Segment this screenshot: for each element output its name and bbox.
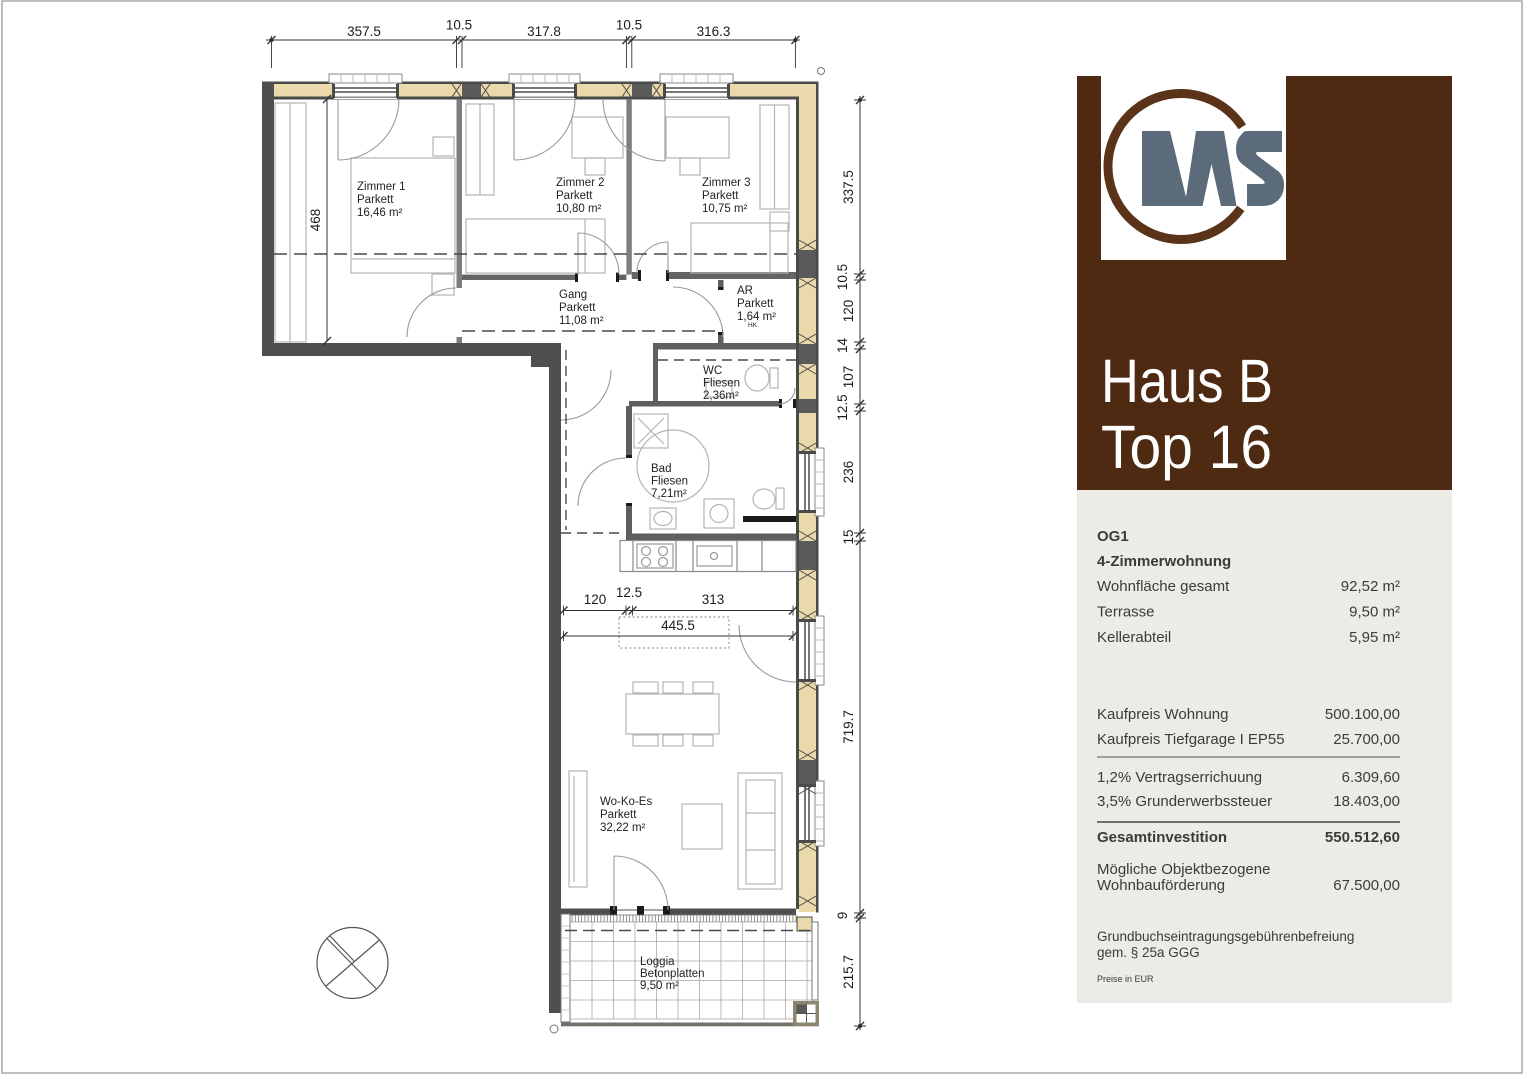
svg-text:Loggia: Loggia — [640, 956, 675, 968]
svg-text:1,2% Vertragserrichuung: 1,2% Vertragserrichuung — [1097, 769, 1262, 786]
svg-text:6.309,60: 6.309,60 — [1342, 769, 1400, 786]
svg-text:Parkett: Parkett — [702, 190, 739, 202]
svg-text:Parkett: Parkett — [600, 809, 637, 821]
svg-text:468: 468 — [308, 209, 323, 232]
svg-text:Parkett: Parkett — [737, 298, 774, 310]
svg-text:10.5: 10.5 — [835, 264, 850, 290]
svg-text:32,22 m²: 32,22 m² — [600, 822, 646, 834]
svg-text:445.5: 445.5 — [661, 618, 695, 633]
svg-text:Mögliche Objektbezogene: Mögliche Objektbezogene — [1097, 861, 1270, 878]
svg-text:Zimmer 1: Zimmer 1 — [357, 181, 406, 193]
svg-text:Haus B: Haus B — [1101, 347, 1273, 415]
svg-text:550.512,60: 550.512,60 — [1325, 829, 1400, 846]
svg-text:10.5: 10.5 — [446, 18, 472, 33]
svg-text:Fliesen: Fliesen — [703, 378, 740, 390]
svg-text:3,5% Grunderwerbssteuer: 3,5% Grunderwerbssteuer — [1097, 793, 1272, 810]
svg-text:317.8: 317.8 — [527, 24, 561, 39]
svg-text:Fliesen: Fliesen — [651, 476, 688, 488]
svg-text:Betonplatten: Betonplatten — [640, 968, 705, 980]
svg-text:Parkett: Parkett — [559, 302, 596, 314]
svg-text:Grundbuchseintragungsgebührenb: Grundbuchseintragungsgebührenbefreiung — [1097, 929, 1354, 944]
svg-text:Kaufpreis Wohnung: Kaufpreis Wohnung — [1097, 706, 1228, 723]
svg-text:gem. § 25a GGG: gem. § 25a GGG — [1097, 945, 1200, 960]
svg-text:OG1: OG1 — [1097, 528, 1129, 545]
svg-text:316.3: 316.3 — [697, 24, 731, 39]
svg-text:Wohnfläche gesamt: Wohnfläche gesamt — [1097, 578, 1230, 595]
svg-text:107: 107 — [841, 366, 856, 389]
svg-text:Parkett: Parkett — [556, 190, 593, 202]
svg-text:Preise in EUR: Preise in EUR — [1097, 974, 1154, 984]
svg-text:7,21m²: 7,21m² — [651, 488, 687, 500]
svg-text:Top 16: Top 16 — [1101, 413, 1272, 481]
svg-text:WC: WC — [703, 365, 722, 377]
svg-text:HK: HK — [748, 322, 758, 329]
svg-text:357.5: 357.5 — [347, 24, 381, 39]
svg-text:236: 236 — [841, 461, 856, 484]
svg-text:10.5: 10.5 — [616, 18, 642, 33]
svg-text:Kellerabteil: Kellerabteil — [1097, 629, 1171, 646]
svg-text:500.100,00: 500.100,00 — [1325, 706, 1400, 723]
svg-text:313: 313 — [702, 592, 725, 607]
svg-text:Wo-Ko-Es: Wo-Ko-Es — [600, 796, 652, 808]
svg-text:AR: AR — [737, 285, 753, 297]
svg-text:12.5: 12.5 — [835, 394, 850, 420]
svg-text:2,36m²: 2,36m² — [703, 390, 739, 402]
svg-text:Bad: Bad — [651, 463, 671, 475]
svg-text:11,08 m²: 11,08 m² — [559, 315, 604, 327]
svg-text:14: 14 — [835, 338, 850, 354]
svg-text:25.700,00: 25.700,00 — [1333, 731, 1400, 748]
svg-text:120: 120 — [584, 592, 607, 607]
svg-text:18.403,00: 18.403,00 — [1333, 793, 1400, 810]
svg-text:Gang: Gang — [559, 289, 587, 301]
svg-text:719.7: 719.7 — [841, 710, 856, 744]
svg-text:10,80 m²: 10,80 m² — [556, 203, 602, 215]
svg-text:9,50 m²: 9,50 m² — [1349, 604, 1400, 621]
svg-text:5,95 m²: 5,95 m² — [1349, 629, 1400, 646]
svg-text:Parkett: Parkett — [357, 194, 394, 206]
svg-text:10,75 m²: 10,75 m² — [702, 203, 748, 215]
svg-text:Zimmer 3: Zimmer 3 — [702, 177, 751, 189]
svg-text:92,52 m²: 92,52 m² — [1341, 578, 1400, 595]
svg-text:15: 15 — [841, 529, 856, 544]
svg-text:4-Zimmerwohnung: 4-Zimmerwohnung — [1097, 553, 1231, 570]
svg-text:Wohnbauförderung: Wohnbauförderung — [1097, 877, 1225, 894]
svg-text:337.5: 337.5 — [841, 170, 856, 204]
svg-text:67.500,00: 67.500,00 — [1333, 877, 1400, 894]
svg-text:Zimmer 2: Zimmer 2 — [556, 177, 605, 189]
svg-text:215.7: 215.7 — [841, 955, 856, 989]
svg-text:Kaufpreis Tiefgarage I EP55: Kaufpreis Tiefgarage I EP55 — [1097, 731, 1285, 748]
svg-text:120: 120 — [841, 300, 856, 323]
svg-text:9: 9 — [835, 912, 850, 920]
svg-text:12.5: 12.5 — [616, 585, 642, 600]
svg-text:16,46 m²: 16,46 m² — [357, 207, 403, 219]
svg-text:Terrasse: Terrasse — [1097, 604, 1155, 621]
svg-text:9,50 m²: 9,50 m² — [640, 980, 679, 992]
svg-text:Gesamtinvestition: Gesamtinvestition — [1097, 829, 1227, 846]
